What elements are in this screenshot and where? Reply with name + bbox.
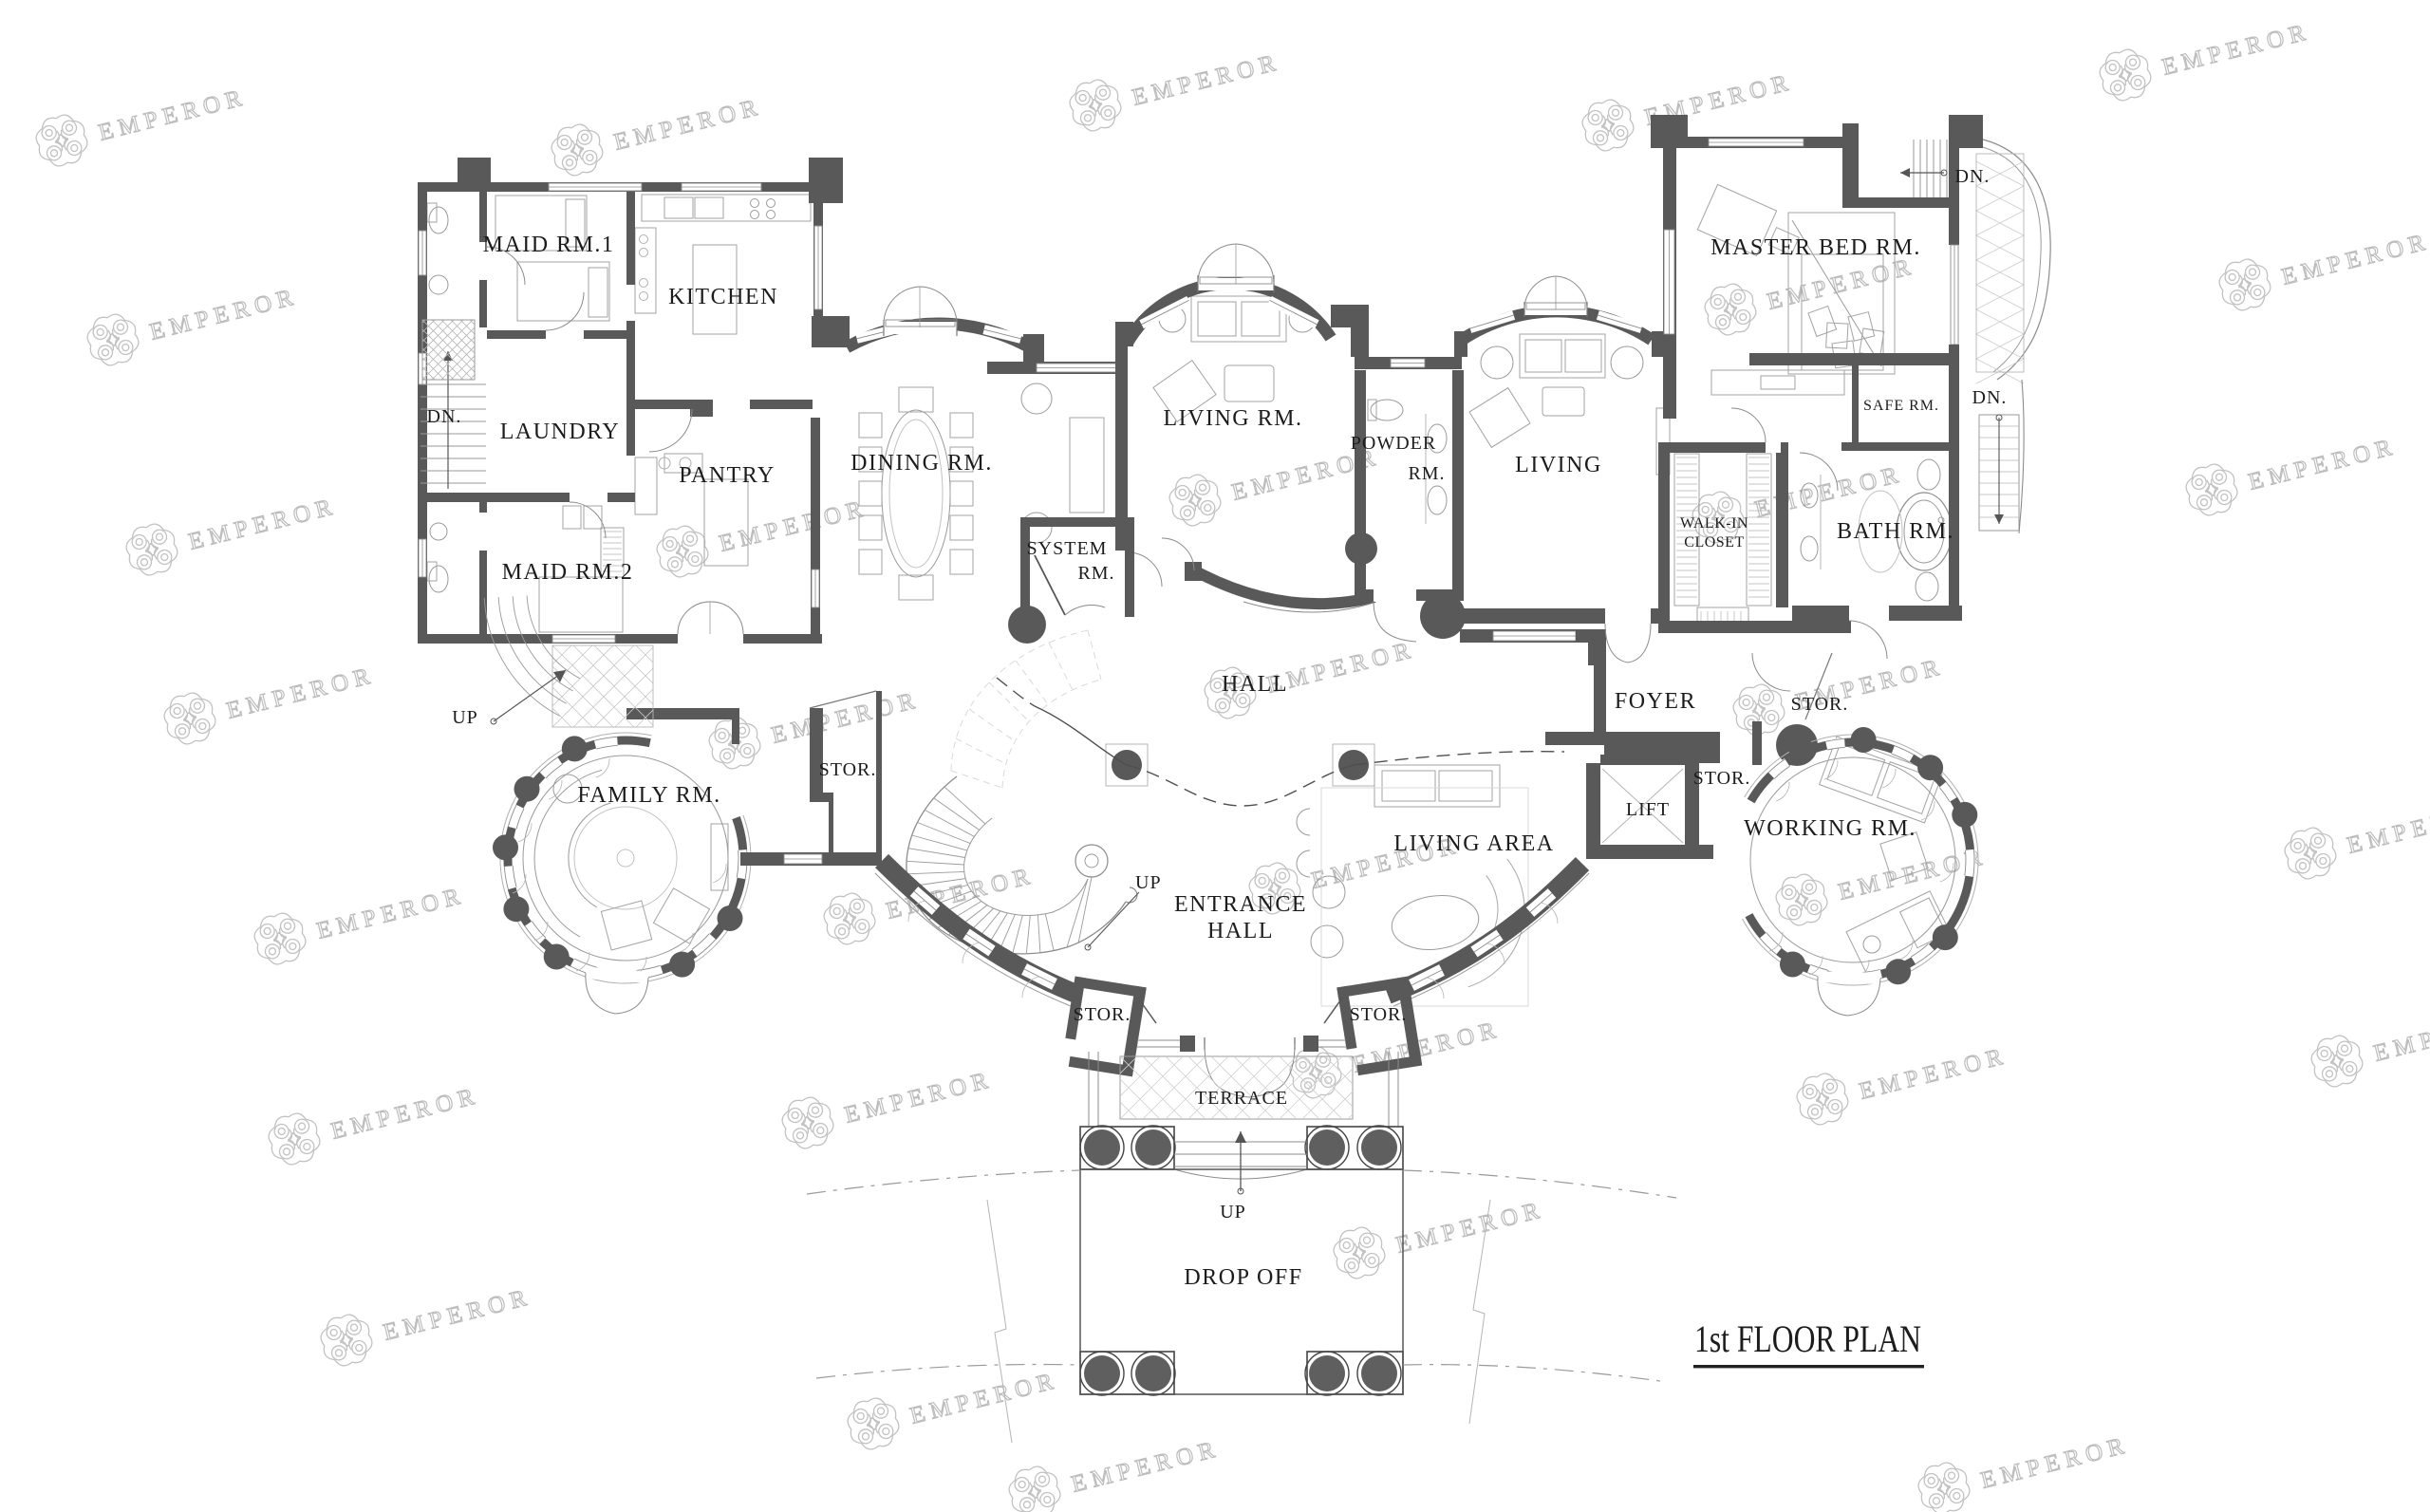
svg-text:WALK-IN: WALK-IN xyxy=(1680,515,1748,532)
svg-text:KITCHEN: KITCHEN xyxy=(668,285,778,309)
svg-text:LIFT: LIFT xyxy=(1626,799,1670,820)
svg-text:MAID RM.2: MAID RM.2 xyxy=(502,560,634,585)
svg-text:POWDER: POWDER xyxy=(1351,433,1436,454)
svg-text:SYSTEM: SYSTEM xyxy=(1027,538,1108,559)
svg-text:FAMILY RM.: FAMILY RM. xyxy=(577,783,720,808)
svg-text:LIVING RM.: LIVING RM. xyxy=(1164,406,1303,431)
svg-text:1st FLOOR PLAN: 1st FLOOR PLAN xyxy=(1694,1317,1921,1360)
svg-text:STOR.: STOR. xyxy=(1074,1004,1131,1025)
svg-text:CLOSET: CLOSET xyxy=(1684,534,1744,551)
svg-text:SAFE RM.: SAFE RM. xyxy=(1863,398,1939,414)
svg-text:ENTRANCE: ENTRANCE xyxy=(1174,892,1307,917)
svg-text:STOR.: STOR. xyxy=(819,759,877,780)
svg-text:DN.: DN. xyxy=(1972,387,2008,408)
svg-text:FOYER: FOYER xyxy=(1615,689,1696,714)
svg-text:STOR.: STOR. xyxy=(1693,768,1751,789)
svg-text:UP: UP xyxy=(1135,872,1162,893)
svg-text:HALL: HALL xyxy=(1222,672,1288,697)
svg-text:UP: UP xyxy=(1220,1202,1246,1223)
svg-text:STOR.: STOR. xyxy=(1791,694,1849,715)
svg-text:MASTER BED RM.: MASTER BED RM. xyxy=(1710,235,1921,260)
svg-text:LIVING AREA: LIVING AREA xyxy=(1393,831,1554,856)
svg-text:MAID RM.1: MAID RM.1 xyxy=(483,233,615,257)
svg-text:WORKING RM.: WORKING RM. xyxy=(1744,816,1916,841)
svg-text:DROP OFF: DROP OFF xyxy=(1184,1265,1302,1290)
svg-text:LIVING: LIVING xyxy=(1515,453,1602,477)
svg-text:RM.: RM. xyxy=(1077,563,1114,584)
svg-text:STOR.: STOR. xyxy=(1350,1004,1408,1025)
svg-text:DINING RM.: DINING RM. xyxy=(850,451,993,476)
svg-text:HALL: HALL xyxy=(1207,919,1274,943)
svg-text:TERRACE: TERRACE xyxy=(1195,1088,1288,1109)
svg-text:PANTRY: PANTRY xyxy=(679,463,775,488)
svg-text:UP: UP xyxy=(452,707,478,728)
svg-text:LAUNDRY: LAUNDRY xyxy=(500,420,621,444)
svg-text:DN.: DN. xyxy=(1955,166,1991,187)
svg-text:RM.: RM. xyxy=(1408,463,1445,484)
svg-text:BATH RM.: BATH RM. xyxy=(1837,519,1954,544)
svg-text:DN.: DN. xyxy=(427,406,462,427)
